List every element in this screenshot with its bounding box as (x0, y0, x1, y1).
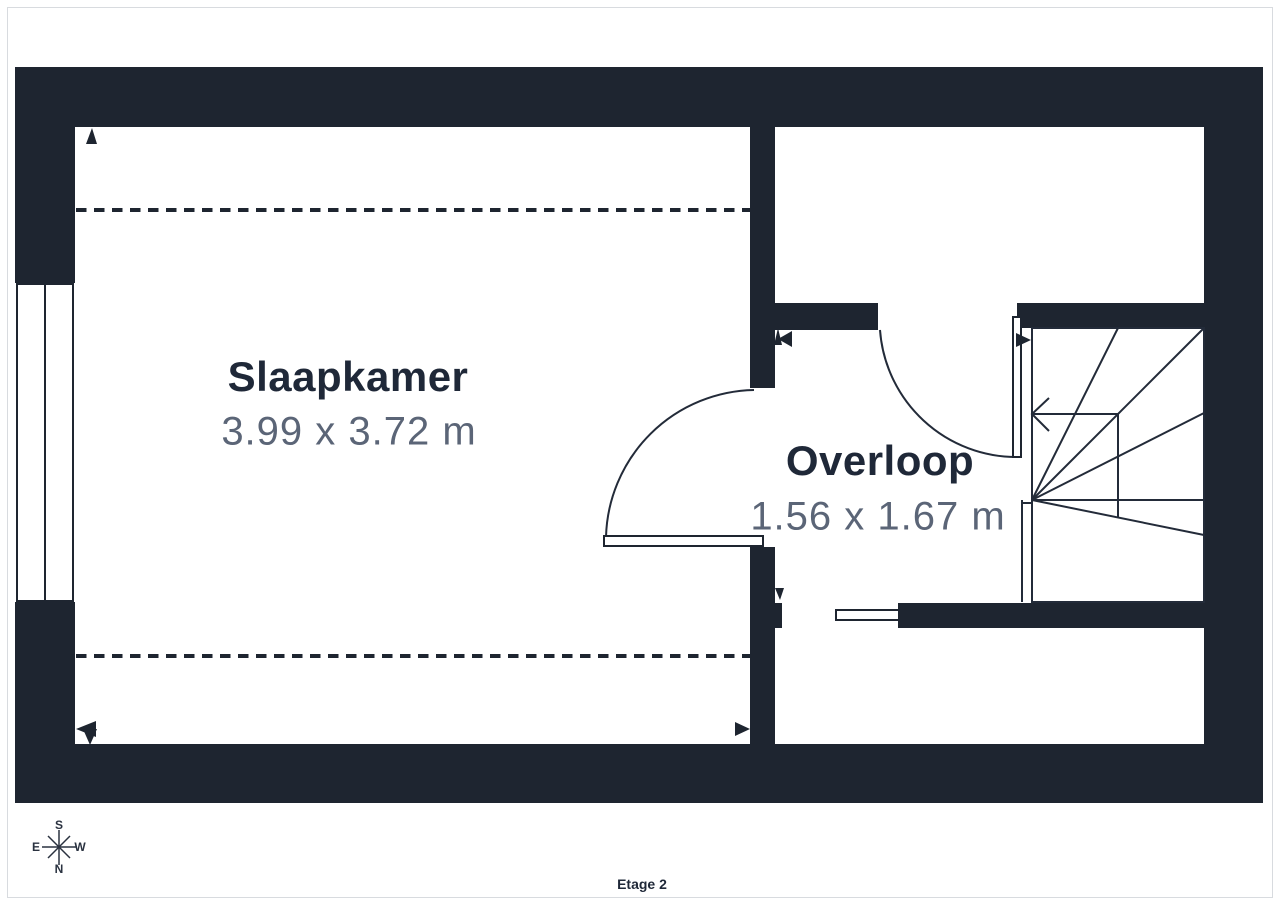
wall-left-lower (15, 602, 75, 744)
wall-above-stairs (1017, 303, 1204, 328)
sliding-door-leaf-icon (836, 610, 899, 620)
window-pane-divider (44, 285, 46, 600)
door-arc-toproom-icon (880, 317, 1021, 457)
room-label-slaapkamer: Slaapkamer (228, 353, 469, 401)
wall-toproom-stub (775, 303, 878, 330)
compass-label-east: E (32, 840, 40, 854)
dimension-arrow-slaapkamer-corner-icon (76, 721, 97, 745)
wall-middle-lower (750, 547, 775, 744)
dimension-arrow-overloop-down-icon (775, 588, 784, 600)
room-dims-overloop: 1.56 x 1.67 m (750, 495, 1005, 540)
wall-right (1204, 127, 1263, 744)
wall-left-upper (15, 127, 75, 283)
dimension-arrow-overloop-corner-icon (774, 328, 792, 347)
dimension-arrow-slaapkamer-right-icon (735, 722, 750, 736)
compass-label-south: S (55, 818, 63, 832)
floor-label: Etage 2 (617, 876, 667, 892)
compass-label-north: N (55, 862, 64, 876)
wall-mid-nub (775, 603, 782, 628)
floor-plan: Slaapkamer 3.99 x 3.72 m Overloop 1.56 x… (0, 0, 1280, 905)
wall-top (15, 67, 1263, 127)
window-left (16, 283, 74, 602)
door-arc-slaapkamer-icon (604, 390, 763, 546)
stairs-icon (1022, 328, 1204, 602)
compass-label-west: W (74, 840, 85, 854)
dimension-arrow-slaapkamer-up-icon (86, 128, 97, 144)
wall-middle-upper (750, 127, 775, 388)
compass-icon (42, 830, 76, 865)
wall-mid-horizontal (898, 603, 1204, 628)
room-label-overloop: Overloop (786, 437, 974, 485)
dimension-arrow-overloop-right-icon (1016, 333, 1031, 347)
wall-bottom (15, 744, 1263, 803)
stair-direction-arrow-icon (1032, 398, 1049, 431)
room-dims-slaapkamer: 3.99 x 3.72 m (221, 410, 476, 455)
